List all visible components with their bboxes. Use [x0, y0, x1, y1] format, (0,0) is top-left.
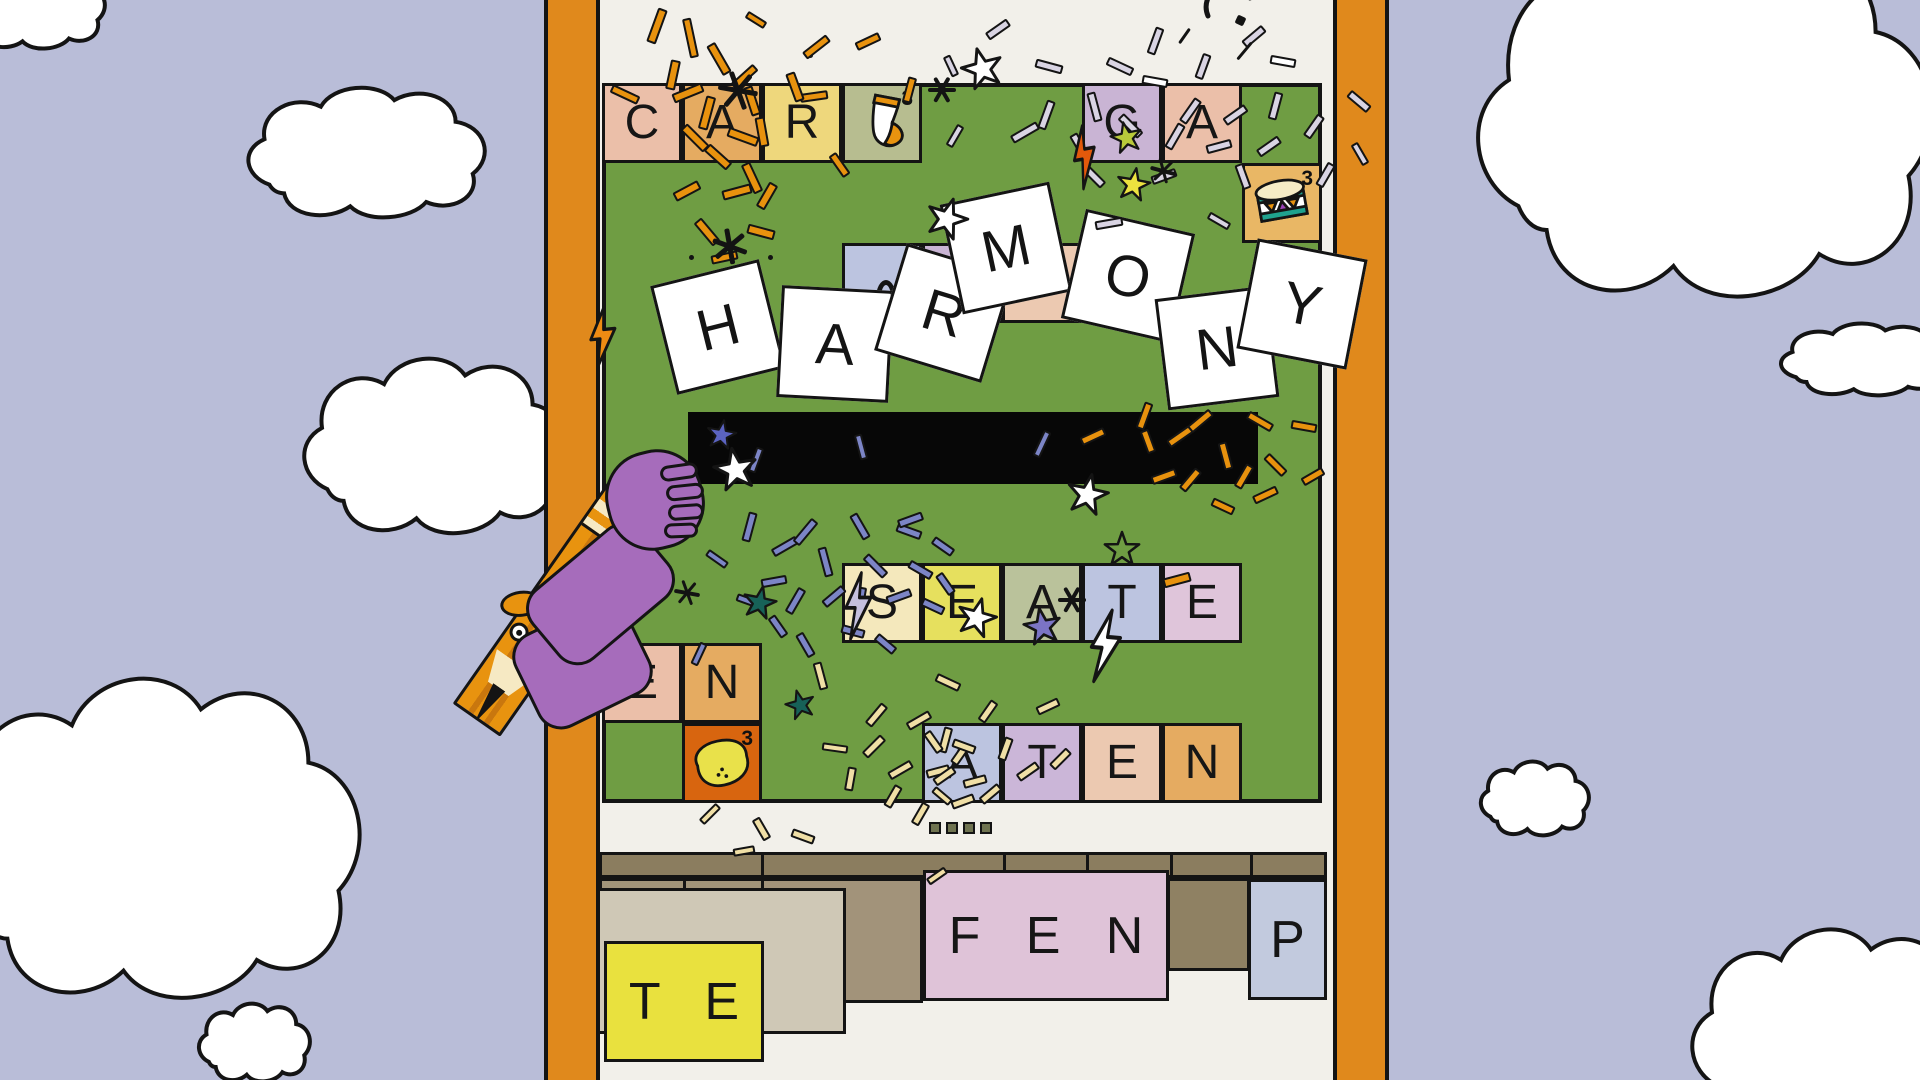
cloud	[1478, 0, 1920, 297]
finger	[667, 503, 704, 521]
rack-divider	[761, 852, 764, 878]
cloud	[1781, 324, 1920, 396]
tile-letter: R	[785, 99, 820, 147]
scattered-tile-Y[interactable]: Y	[1236, 238, 1367, 369]
tile-letter: E	[1106, 739, 1138, 787]
rack-letter: E	[1026, 906, 1061, 966]
sparkle-icon	[715, 67, 761, 113]
cloud	[199, 1004, 310, 1080]
board-tile-E[interactable]: E	[1082, 723, 1162, 803]
tile-letter: N	[1185, 739, 1220, 787]
cloud	[0, 0, 105, 49]
star-icon	[1021, 605, 1066, 654]
finger	[664, 522, 699, 538]
star-icon	[1113, 165, 1153, 209]
rack-letter: E	[704, 972, 739, 1032]
cloud	[304, 359, 564, 534]
rack-tile-P[interactable]: P	[1248, 879, 1327, 1000]
tile-letter: H	[690, 289, 747, 364]
rack-divider	[1170, 852, 1173, 878]
doodle-arc	[1198, 0, 1258, 41]
lightning-icon	[841, 573, 875, 644]
tile-counter-dot	[946, 822, 958, 834]
tile-letter: E	[1186, 579, 1218, 627]
lightning-icon	[1083, 608, 1128, 688]
dot	[768, 255, 773, 260]
illustration-canvas: CARGASEATEENATEN333HARMONYTEFENP	[0, 0, 1920, 1080]
cloud	[1692, 929, 1920, 1080]
rack-slot	[1167, 878, 1250, 971]
bonus-badge: 3	[741, 727, 753, 751]
rack-divider	[1250, 852, 1253, 878]
dot	[689, 255, 694, 260]
sparkle-icon	[928, 76, 956, 104]
tile-letter: C	[625, 99, 660, 147]
rack-tile-TE[interactable]: TE	[604, 941, 764, 1062]
tile-letter: A	[814, 310, 856, 379]
tile-letter: N	[705, 659, 740, 707]
tile-letter: Y	[1277, 267, 1328, 340]
rack-letter: N	[1106, 906, 1144, 966]
tile-counter-dot	[929, 822, 941, 834]
bonus-tile-lemon-icon[interactable]: 3	[682, 723, 762, 803]
cloud	[1481, 762, 1589, 836]
bonus-tile-drum-icon[interactable]: 3	[1242, 163, 1322, 243]
rack-letter: P	[1270, 910, 1305, 970]
rack-letter: T	[629, 972, 661, 1032]
tile-letter: O	[1098, 238, 1157, 313]
sparkle-icon	[1058, 586, 1086, 614]
tile-counter-dot	[963, 822, 975, 834]
board-tile-N[interactable]: N	[1162, 723, 1242, 803]
rack-tile-FEN[interactable]: FEN	[923, 870, 1169, 1001]
tile-letter: N	[1192, 312, 1242, 384]
cloud	[248, 88, 484, 218]
star-icon	[710, 445, 762, 501]
star-icon	[1104, 532, 1140, 573]
board-tile-T[interactable]: T	[1002, 723, 1082, 803]
tile-letter: M	[975, 210, 1036, 286]
tile-counter-dot	[980, 822, 992, 834]
cloud	[0, 679, 360, 998]
rack-letter: F	[949, 906, 981, 966]
board-tile-C[interactable]: C	[602, 83, 682, 163]
bonus-badge: 3	[1301, 167, 1313, 191]
lightning-icon	[583, 307, 622, 373]
sparkle-icon	[672, 578, 702, 608]
